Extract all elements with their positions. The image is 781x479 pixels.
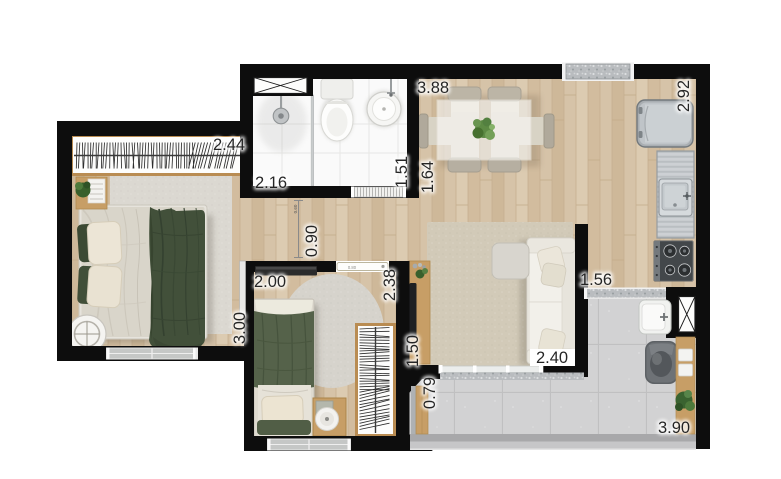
- svg-text:1.56: 1.56: [580, 271, 612, 289]
- svg-text:3.90: 3.90: [658, 419, 690, 437]
- svg-text:0.90: 0.90: [303, 225, 321, 257]
- svg-text:3.00: 3.00: [231, 312, 249, 344]
- svg-text:2.16: 2.16: [255, 174, 287, 192]
- svg-text:0.60: 0.60: [293, 204, 298, 213]
- svg-text:2.92: 2.92: [675, 80, 693, 112]
- svg-text:3.88: 3.88: [417, 79, 449, 97]
- svg-text:0.80: 0.80: [348, 265, 357, 270]
- svg-text:1.50: 1.50: [404, 335, 422, 367]
- svg-text:1.64: 1.64: [419, 161, 437, 193]
- svg-text:2.38: 2.38: [381, 269, 399, 301]
- svg-text:2.00: 2.00: [254, 273, 286, 291]
- svg-text:2.44: 2.44: [213, 136, 245, 154]
- svg-text:1.51: 1.51: [393, 156, 411, 188]
- svg-text:2.40: 2.40: [536, 349, 568, 367]
- svg-text:0.79: 0.79: [421, 377, 439, 409]
